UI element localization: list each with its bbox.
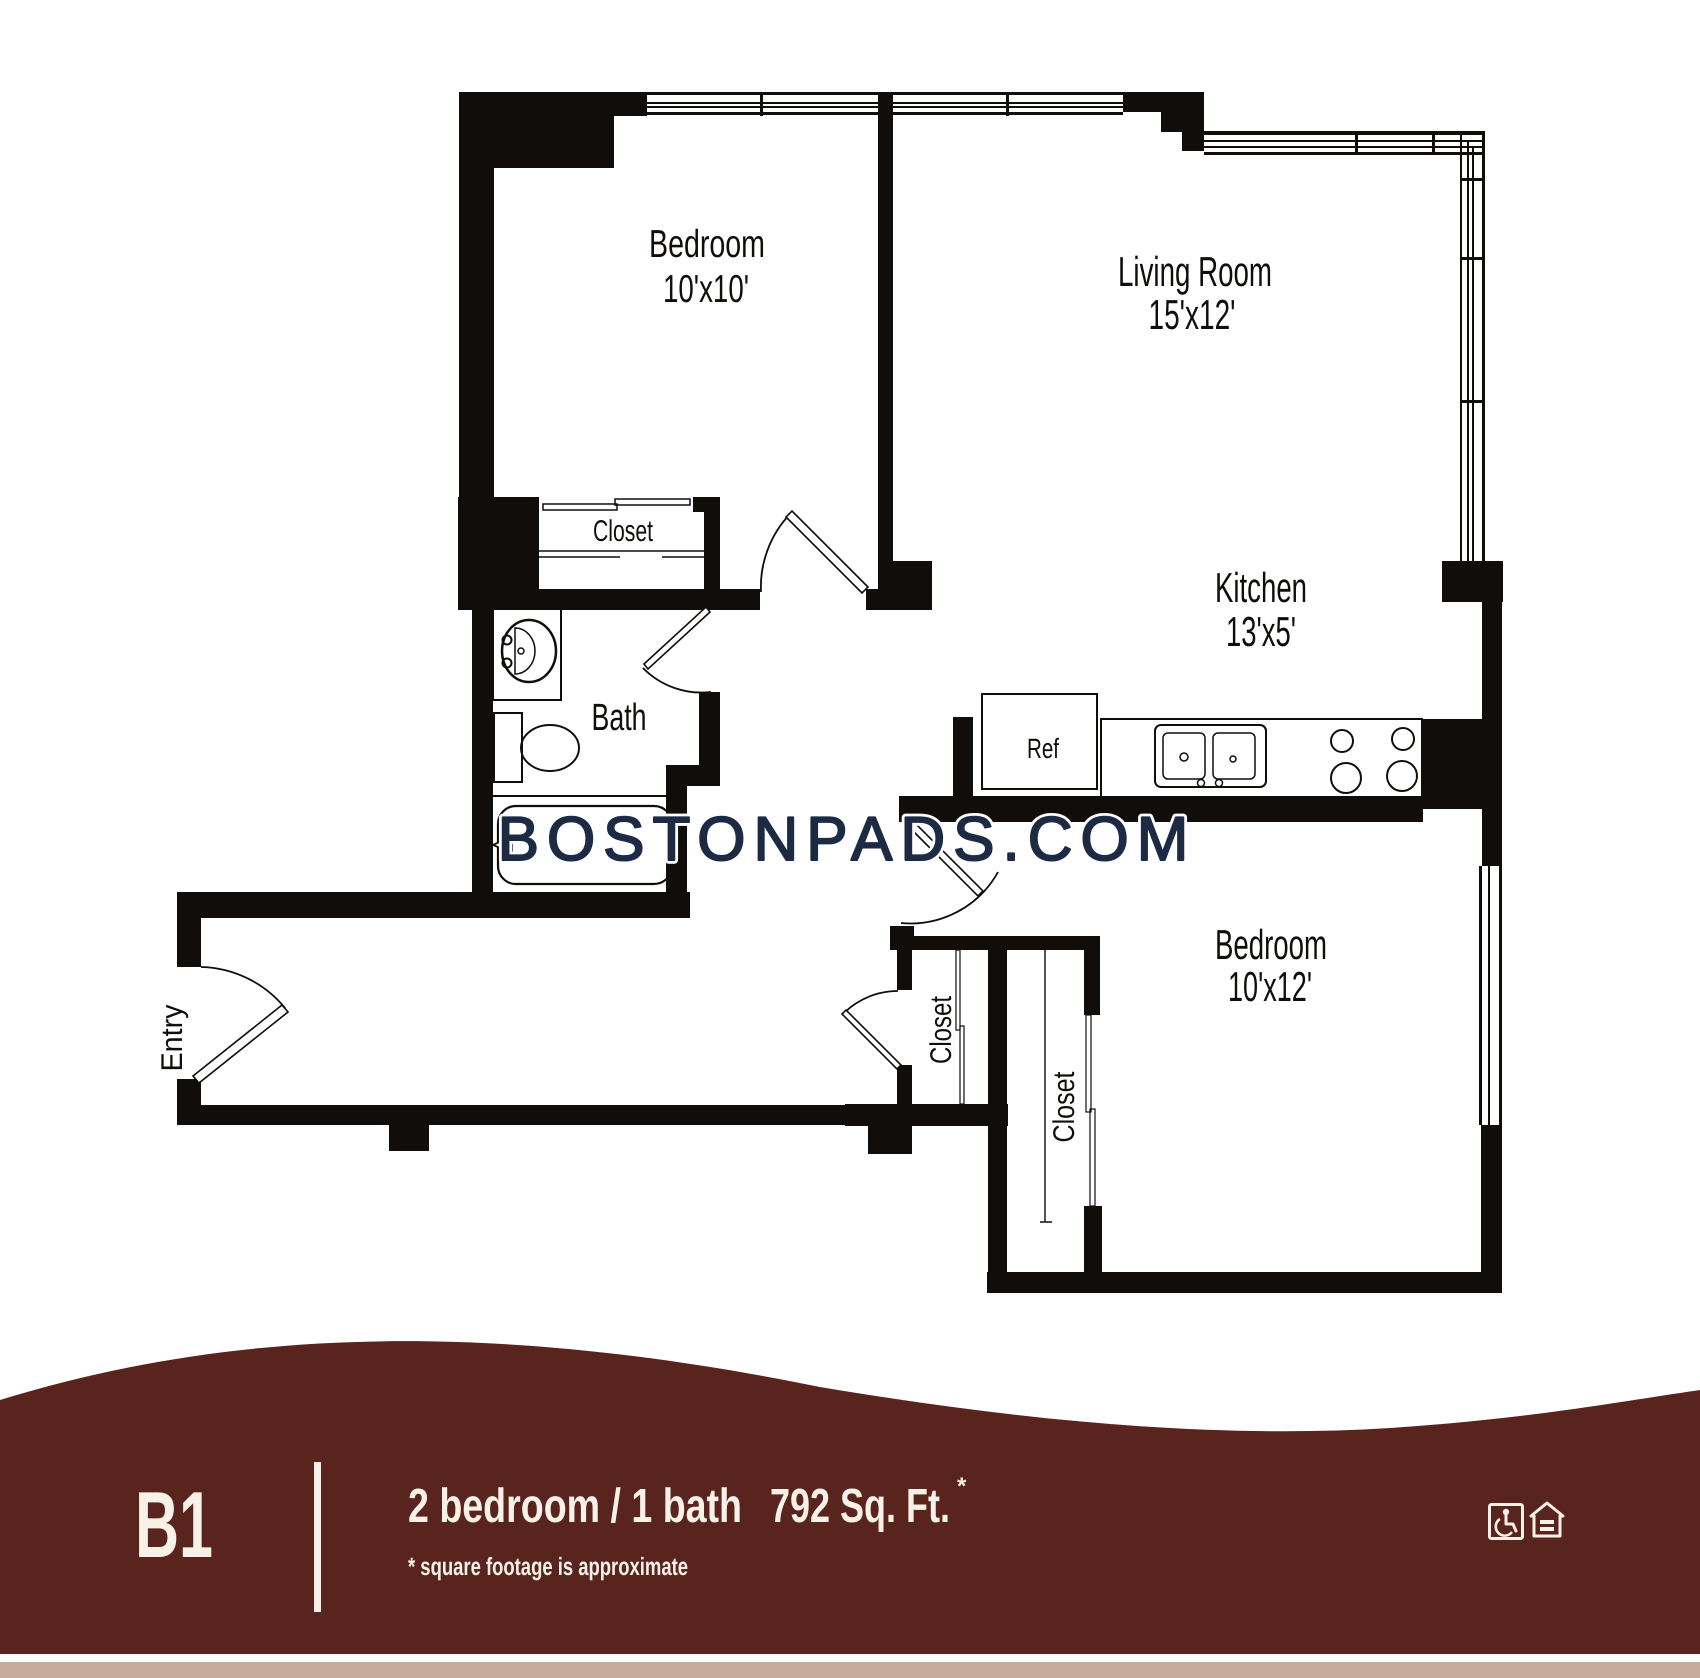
svg-text:2 bedroom / 1 bath: 2 bedroom / 1 bath	[408, 1480, 742, 1533]
svg-text:Entry: Entry	[156, 1005, 189, 1072]
svg-text:Bedroom: Bedroom	[649, 223, 765, 266]
svg-text:10'x10': 10'x10'	[663, 268, 749, 311]
svg-text:Bedroom: Bedroom	[1215, 921, 1327, 968]
svg-text:Living Room: Living Room	[1118, 248, 1272, 295]
svg-text:10'x12': 10'x12'	[1228, 963, 1312, 1010]
svg-text:*: *	[957, 1473, 967, 1500]
svg-text:BOSTONPADS.COM: BOSTONPADS.COM	[498, 805, 1197, 874]
svg-text:B1: B1	[135, 1472, 213, 1577]
svg-text:13'x5': 13'x5'	[1226, 608, 1296, 655]
svg-text:Closet: Closet	[925, 995, 958, 1064]
svg-text:Closet: Closet	[1048, 1071, 1081, 1143]
svg-text:Bath: Bath	[592, 697, 647, 739]
svg-text:15'x12': 15'x12'	[1149, 291, 1236, 338]
svg-text:* square footage is approximat: * square footage is approximate	[408, 1553, 688, 1581]
svg-text:Kitchen: Kitchen	[1215, 564, 1307, 611]
svg-text:792 Sq. Ft.: 792 Sq. Ft.	[770, 1480, 950, 1533]
svg-text:Ref: Ref	[1027, 733, 1059, 764]
svg-text:Closet: Closet	[593, 515, 653, 548]
